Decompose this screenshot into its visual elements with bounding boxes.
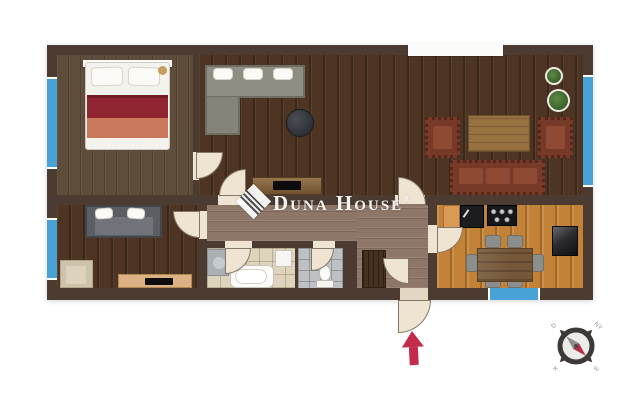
beige-armchair [60, 260, 93, 288]
door-opening-wc [313, 241, 335, 248]
armchair-cushion [546, 126, 565, 149]
bed-pillow [91, 66, 124, 86]
registered-mark: ® [403, 194, 412, 204]
fridge [552, 226, 578, 256]
compass-label-ne: NY [593, 321, 603, 331]
window-bedroom [47, 77, 57, 169]
window-living-top [408, 41, 503, 56]
sofa-cushion [459, 168, 483, 184]
bed-pillow [128, 66, 161, 86]
washing-machine-door [213, 257, 225, 269]
sofa-pillow [127, 207, 146, 219]
watermark: Duna House® [241, 187, 412, 216]
beige-armchair-seat [66, 266, 86, 284]
dining-chair [532, 254, 544, 272]
floor-plan [47, 45, 593, 300]
leather-armchair [425, 117, 460, 158]
entrance-arrow [398, 330, 428, 369]
potted-plant [547, 89, 570, 112]
bathtub-basin [235, 269, 267, 284]
ottoman [286, 109, 314, 137]
bed-decor [158, 66, 167, 75]
coffee-table [468, 115, 530, 152]
compass-label-nw: D [551, 322, 559, 330]
sofa-pillow [273, 68, 293, 80]
sofa-pillow [213, 68, 233, 80]
entrance-arrow-head [401, 330, 424, 347]
dining-chair [507, 235, 523, 248]
compass-label-sw: K [551, 366, 558, 373]
corner-sofa-chaise [205, 97, 240, 135]
entrance-door-arc [398, 300, 431, 333]
door-opening-lounge [199, 211, 207, 239]
dining-table [477, 248, 533, 282]
wardrobe [362, 250, 386, 288]
small-sofa-seat [95, 217, 153, 235]
door-opening-entrance [400, 288, 428, 300]
floor-plan-page: Duna House® D NY É K [0, 0, 640, 410]
door-opening-bathroom [225, 241, 252, 248]
brand-name: Duna House [273, 191, 403, 215]
compass-rose: D NY É K [547, 317, 605, 375]
sofa-pillow [243, 68, 263, 80]
sofa-cushion [513, 168, 537, 184]
sofa-cushion [486, 168, 510, 184]
compass-label-se: É [593, 365, 601, 373]
duna-house-logo-icon [236, 184, 271, 219]
leather-sofa [450, 160, 545, 195]
window-kitchen [488, 288, 540, 300]
toilet-tank [316, 280, 334, 288]
window-living [583, 75, 593, 187]
bed-blanket-red [87, 95, 168, 118]
cooktop [487, 205, 517, 226]
entrance-arrow-stem [408, 347, 418, 365]
faucet [463, 209, 470, 218]
kitchen-sink [460, 205, 484, 228]
wash-basin [275, 250, 292, 267]
tv-screen-lounge [145, 278, 173, 285]
armchair-cushion [433, 126, 452, 149]
bed-blanket-salmon [87, 118, 168, 138]
dining-chair [485, 235, 501, 248]
door-opening-kitchen [428, 225, 437, 253]
kitchen-cabinet [443, 205, 460, 228]
leather-armchair [538, 117, 573, 158]
window-lounge [47, 218, 57, 280]
potted-plant [545, 67, 563, 85]
sofa-pillow [95, 207, 114, 219]
watermark-brand-text: Duna House® [273, 187, 412, 216]
